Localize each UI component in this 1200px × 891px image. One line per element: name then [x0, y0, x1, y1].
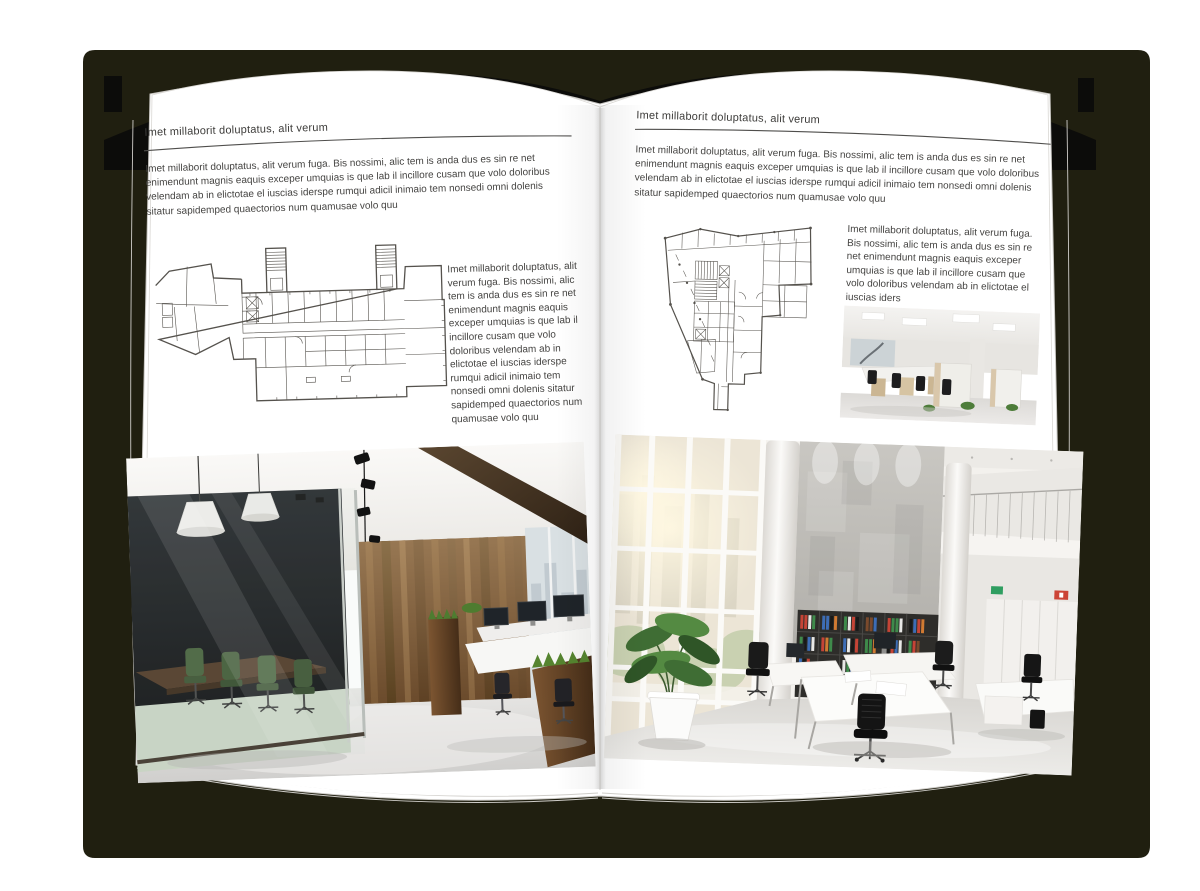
glass-wall — [127, 488, 365, 762]
right-floorplan-drawing — [656, 220, 816, 419]
right-office-photo — [604, 435, 1084, 776]
left-intro-paragraph: Imet millaborit doluptatus, alit verum f… — [145, 151, 570, 220]
right-page-title: Imet millaborit doluptatus, alit verum — [636, 109, 820, 126]
left-page-content: Imet millaborit doluptatus, alit verum I… — [115, 79, 600, 798]
right-side-paragraph: Imet millaborit doluptatus, alit verum f… — [845, 223, 1047, 310]
right-intro-paragraph: Imet millaborit doluptatus, alit verum f… — [634, 143, 1051, 211]
left-office-photo — [126, 442, 596, 784]
small-office-photo — [840, 306, 1040, 426]
exit-sign — [991, 586, 1003, 594]
left-floorplan-drawing — [152, 235, 449, 415]
header-rule — [635, 125, 1051, 145]
right-page-content: Imet millaborit doluptatus, alit verum I… — [601, 79, 1091, 797]
left-side-paragraph: Imet millaborit doluptatus, alit verum f… — [447, 260, 584, 427]
left-page-title: Imet millaborit doluptatus, alit verum — [144, 122, 328, 139]
brochure-mockup: Imet millaborit doluptatus, alit verum I… — [0, 0, 1200, 891]
